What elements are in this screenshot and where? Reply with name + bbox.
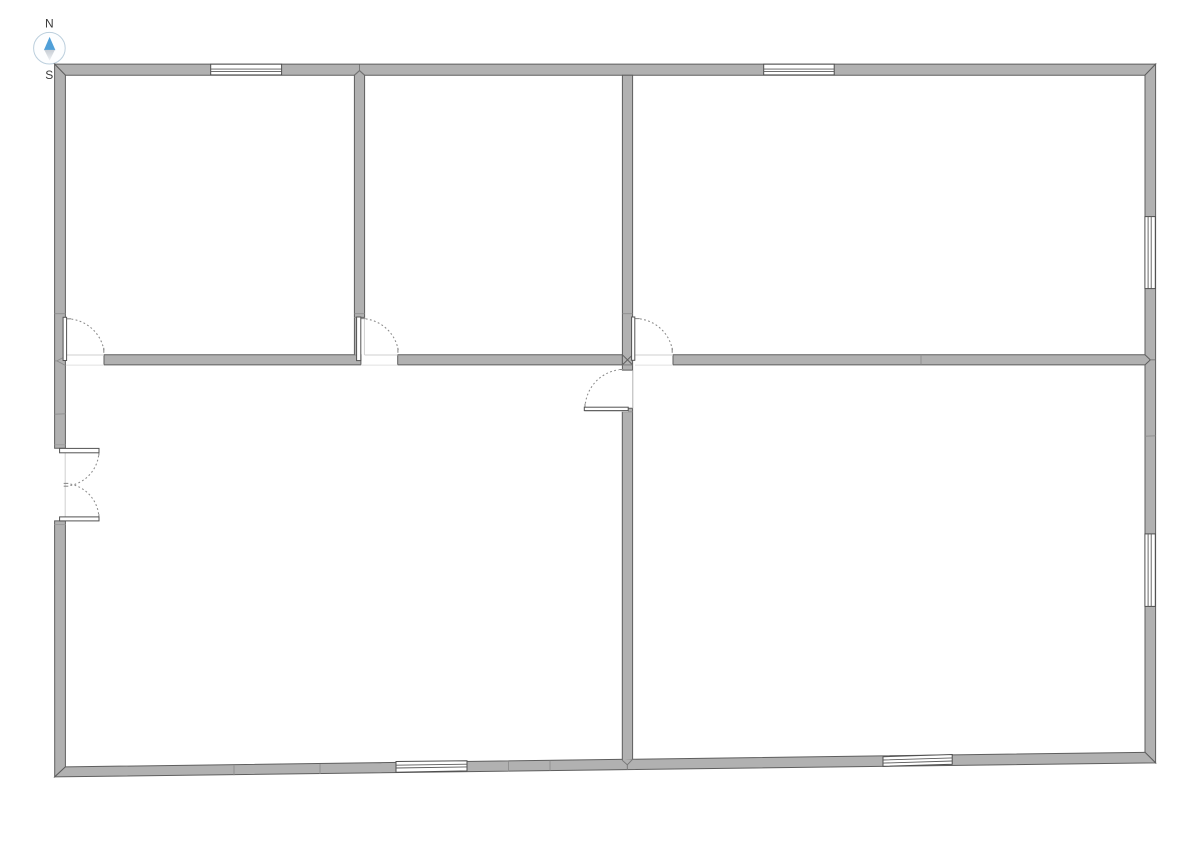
svg-text:S: S (45, 68, 53, 82)
svg-text:N: N (45, 17, 54, 31)
